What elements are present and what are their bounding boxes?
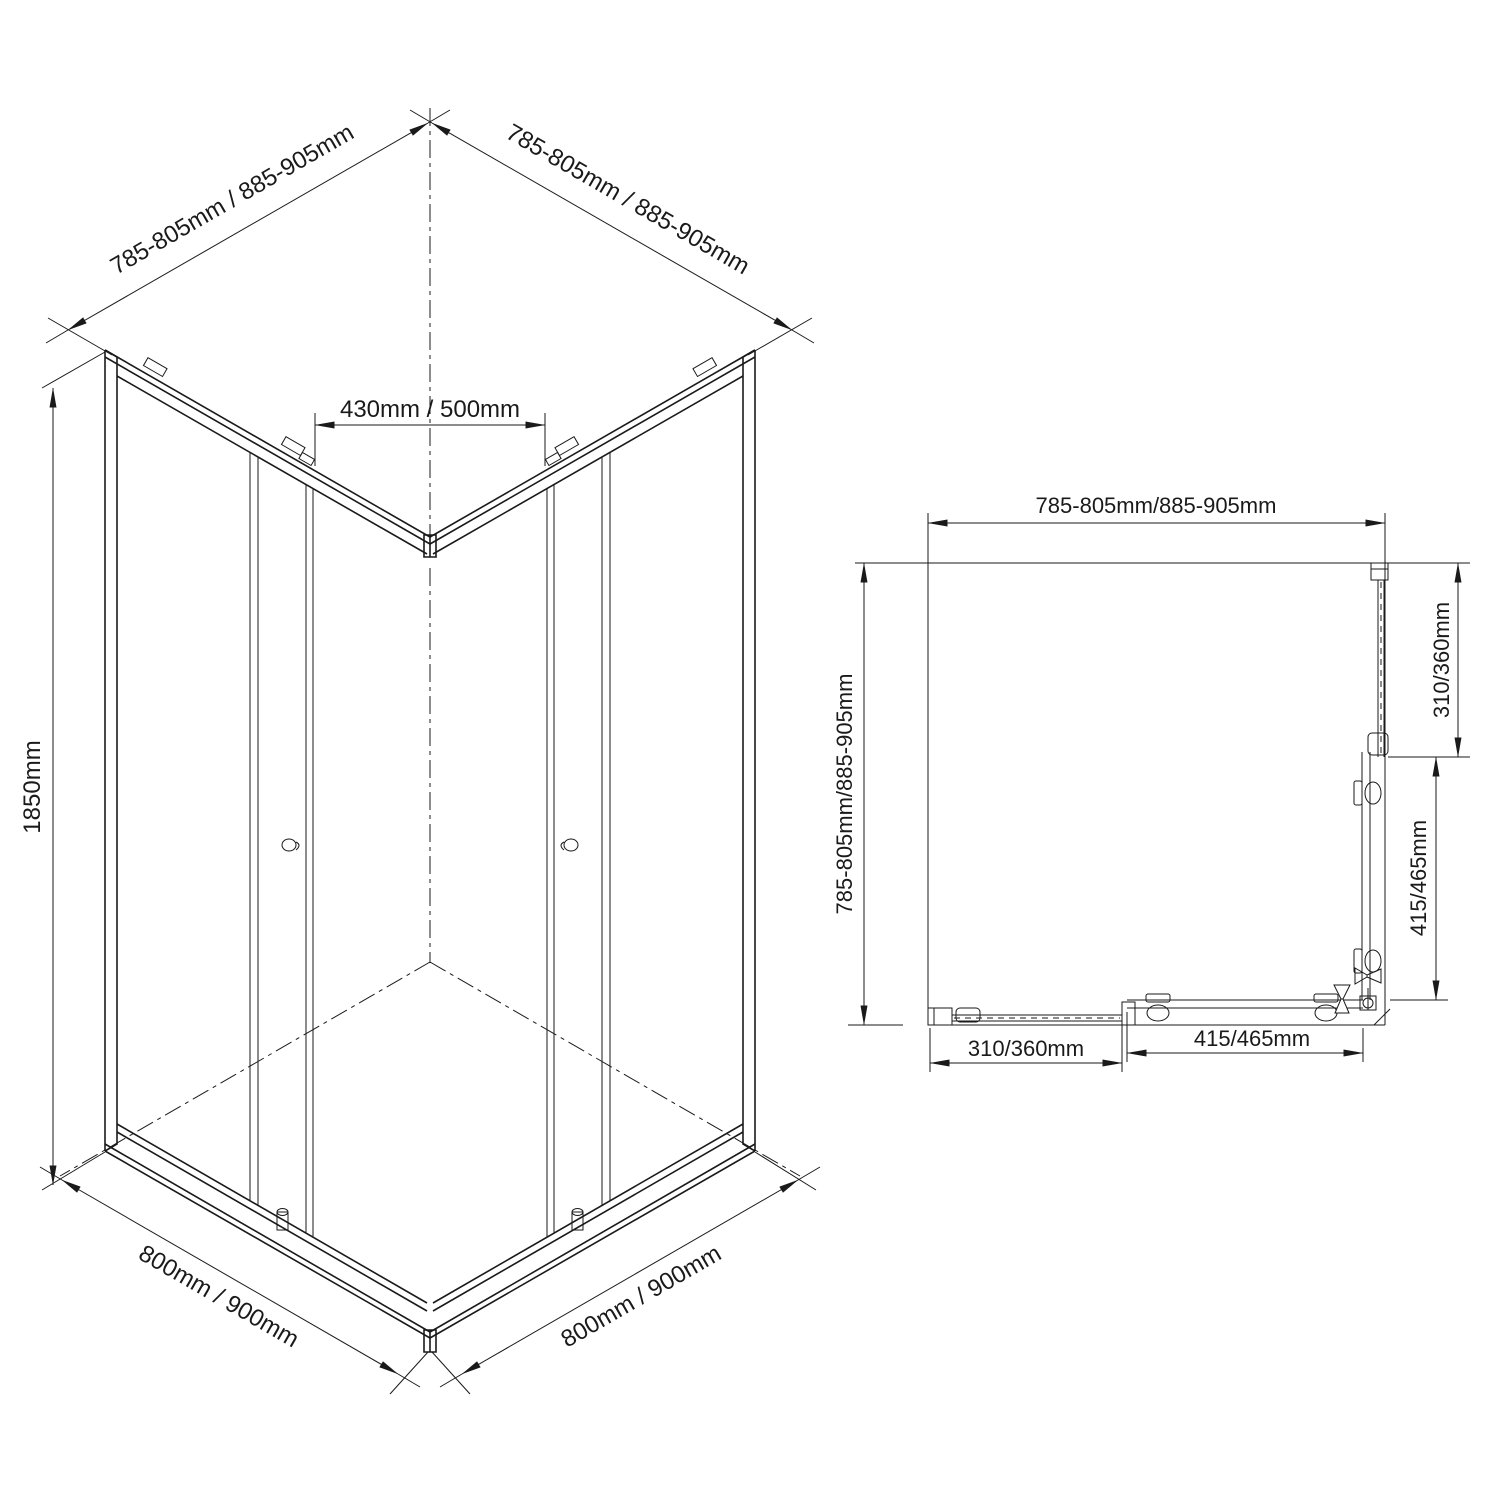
iso-right-width-label: 785-805mm / 885-905mm: [501, 119, 754, 280]
plan-top-width-label: 785-805mm/885-905mm: [1036, 493, 1277, 518]
isometric-view: 785-805mm / 885-905mm 785-805mm / 885-90…: [19, 108, 820, 1394]
left-wall-rear-profile: [105, 350, 117, 1151]
plan-bottom-sliding-door: [1127, 1000, 1363, 1008]
left-top-rail: [105, 350, 430, 554]
plan-bottom-wall-profile: [928, 1008, 952, 1025]
plan-extension-lines: [848, 513, 1470, 1072]
left-door-knob-side: [296, 842, 299, 850]
plan-bottom-junction-profile: [1122, 1002, 1135, 1025]
plan-right-door-roller: [1354, 781, 1381, 805]
left-door-knob: [282, 839, 296, 851]
shower-enclosure-drawing: 785-805mm / 885-905mm 785-805mm / 885-90…: [0, 0, 1500, 1500]
iso-base-right-dimension: [462, 1180, 798, 1374]
corner-centerline: [60, 108, 800, 1176]
plan-bottom-door-label: 415/465mm: [1194, 1026, 1310, 1051]
left-bottom-rail: [105, 1124, 430, 1338]
iso-left-width-label: 785-805mm / 885-905mm: [106, 119, 359, 280]
plan-right-door-label: 415/465mm: [1406, 820, 1431, 936]
iso-opening-label: 430mm / 500mm: [340, 396, 520, 423]
plan-view: 785-805mm/885-905mm 785-805mm/885-905mm …: [832, 493, 1470, 1072]
iso-base-right-label: 800mm / 900mm: [557, 1240, 726, 1353]
plan-bottom-fixed-label: 310/360mm: [968, 1036, 1084, 1061]
left-door-leading-edge: [306, 485, 313, 1237]
plan-right-sliding-door: [1362, 752, 1370, 1000]
plan-bottom-door-knob: [1334, 985, 1350, 1013]
plan-outline: [855, 513, 1390, 1025]
iso-left-width-dimension: [68, 123, 428, 330]
right-top-rail: [430, 350, 755, 554]
technical-drawing-page: 785-805mm / 885-905mm 785-805mm / 885-90…: [0, 0, 1500, 1500]
plan-left-depth-label: 785-805mm/885-905mm: [832, 674, 857, 915]
corner-post-bottom: [424, 1330, 436, 1352]
iso-base-left-label: 800mm / 900mm: [134, 1240, 303, 1353]
iso-height-label: 1850mm: [19, 740, 46, 833]
right-door-leading-edge: [547, 485, 554, 1237]
iso-right-width-dimension: [432, 123, 792, 330]
iso-base-left-dimension: [62, 1180, 398, 1374]
right-bottom-rail: [430, 1124, 755, 1338]
plan-right-fixed-label: 310/360mm: [1429, 602, 1454, 718]
right-fixed-panel-edge: [602, 453, 610, 1205]
right-door-knob: [564, 839, 578, 851]
left-fixed-panel-edge: [250, 453, 258, 1205]
right-door-knob-side: [561, 842, 564, 850]
right-wall-rear-profile: [743, 350, 755, 1151]
